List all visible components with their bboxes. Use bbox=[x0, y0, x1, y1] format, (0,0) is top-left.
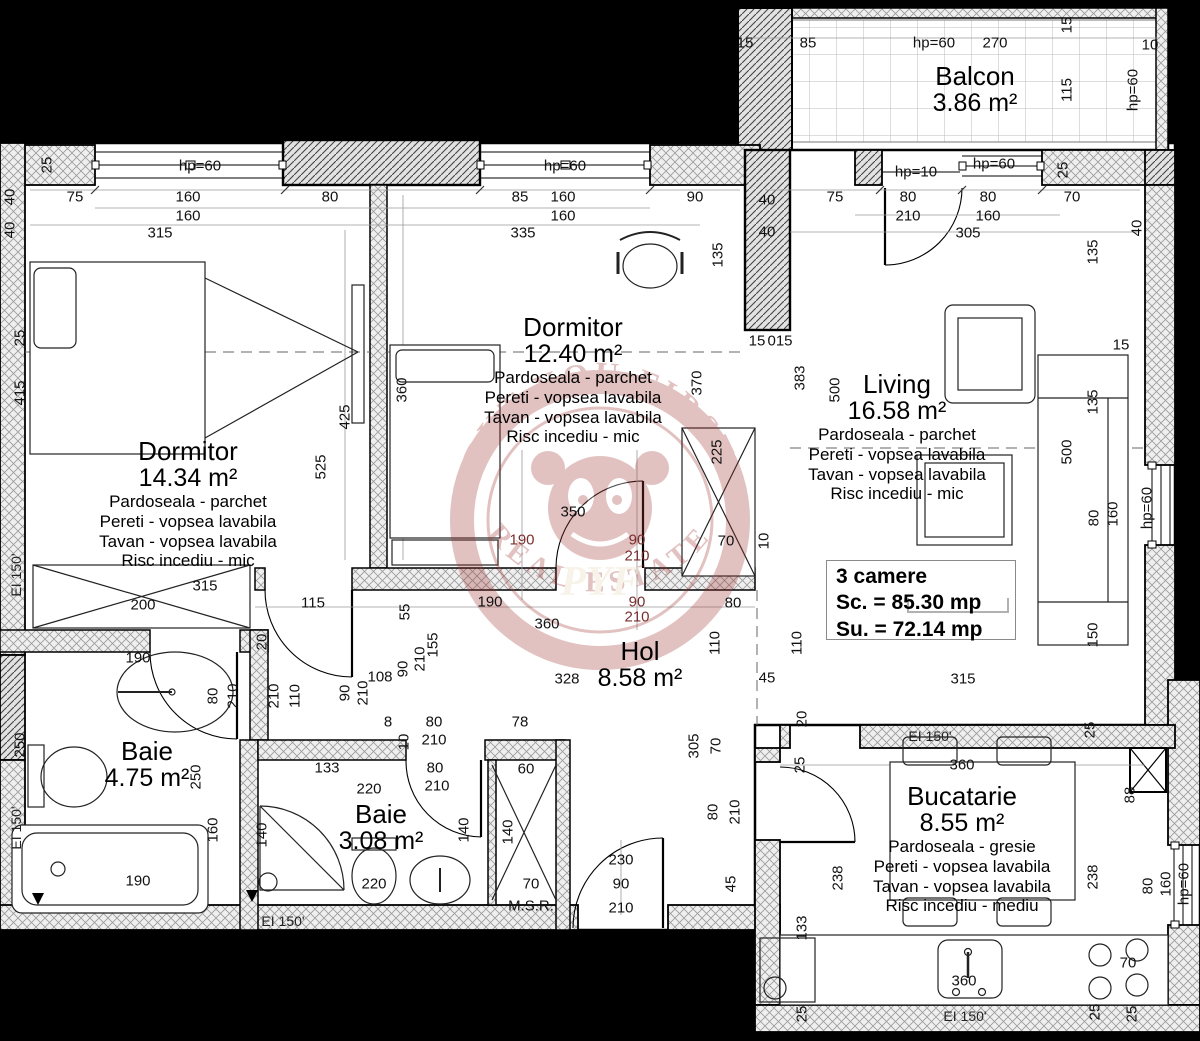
dimension-label: 140 bbox=[255, 822, 270, 847]
room-label-dormitor-2: Dormitor12.40 m²Pardoseala - parchetPere… bbox=[484, 313, 662, 447]
dimension-label: 160 bbox=[206, 817, 221, 842]
dimension-label: 210 bbox=[424, 779, 449, 794]
dimension-label: 190 bbox=[509, 533, 534, 548]
dimension-label: 210 bbox=[413, 646, 428, 671]
dimension-label: 45 bbox=[724, 876, 739, 893]
dimension-label: 85 bbox=[512, 190, 529, 205]
room-finish: Risc incediu - mic bbox=[808, 484, 986, 504]
room-finish: Pardoseala - gresie bbox=[873, 837, 1051, 857]
dimension-label: 80 bbox=[206, 688, 221, 705]
room-name: Bucatarie bbox=[873, 782, 1051, 810]
dimension-label: 78 bbox=[512, 715, 529, 730]
dimension-label: 315 bbox=[950, 672, 975, 687]
dimension-label: 70 bbox=[1064, 190, 1081, 205]
room-area: 14.34 m² bbox=[99, 465, 277, 492]
dimension-label: 75 bbox=[67, 190, 84, 205]
dimension-label: 110 bbox=[708, 631, 723, 655]
dimension-label: 360 bbox=[949, 758, 974, 773]
dimension-label: 015 bbox=[767, 334, 792, 349]
dimension-label: 90 bbox=[687, 190, 704, 205]
dimension-label: 15 bbox=[749, 334, 766, 349]
dimension-label: 270 bbox=[982, 36, 1007, 51]
room-label-baie-1: Baie4.75 m² bbox=[105, 737, 190, 792]
dimension-label: hp=60 bbox=[179, 159, 221, 174]
room-finish: Risc incediu - mic bbox=[99, 551, 277, 571]
room-area: 12.40 m² bbox=[484, 341, 662, 368]
dimension-label: 210 bbox=[267, 683, 282, 708]
fire-rating-label: EI 150' bbox=[908, 729, 951, 743]
dimension-label: 80 bbox=[706, 804, 721, 821]
room-finish: Tavan - vopsea lavabila bbox=[873, 877, 1051, 897]
dimension-label: 25 bbox=[795, 1006, 810, 1023]
dimension-label: 25 bbox=[1056, 162, 1071, 179]
dimension-label: hp=60 bbox=[1140, 487, 1155, 529]
dimension-label: 110 bbox=[288, 684, 303, 708]
dimension-label: 110 bbox=[790, 631, 805, 655]
dimension-label: 40 bbox=[759, 225, 776, 240]
room-finish: Pereti - vopsea lavabila bbox=[808, 445, 986, 465]
dimension-label: 115 bbox=[301, 596, 325, 611]
dimension-label: 160 bbox=[975, 209, 1000, 224]
dimension-label: 80 bbox=[322, 190, 339, 205]
dimension-label: 250 bbox=[13, 732, 28, 757]
room-finish: Tavan - vopsea lavabila bbox=[484, 408, 662, 428]
dimension-label: 40 bbox=[759, 193, 776, 208]
dimension-label: 250 bbox=[189, 764, 204, 789]
dimension-label: 15 bbox=[1113, 338, 1130, 353]
dimension-label: 305 bbox=[955, 226, 980, 241]
dimension-label: 40 bbox=[3, 189, 18, 206]
dimension-label: 160 bbox=[175, 209, 200, 224]
dimension-label: 75 bbox=[827, 190, 844, 205]
fire-rating-label: EI 150' bbox=[9, 553, 23, 596]
dimension-label: 210 bbox=[608, 901, 633, 916]
dimension-label: 85 bbox=[800, 36, 817, 51]
room-finish: Pereti - vopsea lavabila bbox=[99, 512, 277, 532]
room-name: Dormitor bbox=[484, 313, 662, 341]
dimension-label: 305 bbox=[687, 733, 702, 758]
dimension-label: 15 bbox=[1060, 17, 1075, 34]
dimension-label: 135 bbox=[1086, 239, 1101, 264]
dimension-label: 40 bbox=[3, 222, 18, 239]
dimension-label: hp=60 bbox=[973, 157, 1015, 172]
dimension-label: 238 bbox=[831, 865, 846, 890]
dimension-label: 370 bbox=[690, 370, 705, 395]
dimension-label: 160 bbox=[550, 190, 575, 205]
room-finish: Tavan - vopsea lavabila bbox=[808, 465, 986, 485]
dimension-label: 328 bbox=[554, 672, 579, 687]
dimension-label: 15 bbox=[737, 36, 754, 51]
summary-usable-area: Su. = 72.14 mp bbox=[836, 617, 1015, 643]
dimension-label: 80 bbox=[1087, 510, 1102, 527]
dimension-label: 210 bbox=[356, 680, 371, 705]
dimension-label: 210 bbox=[895, 209, 920, 224]
dimension-label: 8 bbox=[384, 715, 392, 730]
room-name: Living bbox=[808, 370, 986, 398]
room-name: Baie bbox=[339, 800, 424, 828]
room-finish: Pardoseala - parchet bbox=[808, 425, 986, 445]
room-area: 4.75 m² bbox=[105, 765, 190, 792]
dimension-label: 55 bbox=[398, 604, 413, 621]
room-finish: Pardoseala - parchet bbox=[484, 368, 662, 388]
dimension-label: hp=60 bbox=[913, 36, 955, 51]
room-name: Balcon bbox=[933, 62, 1018, 90]
dimension-label: 190 bbox=[477, 595, 502, 610]
dimension-label: 210 bbox=[624, 610, 649, 625]
dimension-label: 80 bbox=[427, 761, 444, 776]
dimension-label: 25 bbox=[1088, 1004, 1103, 1021]
room-finish: Pereti - vopsea lavabila bbox=[484, 388, 662, 408]
dimension-label: 315 bbox=[192, 579, 217, 594]
room-finish: Risc incediu - mediu bbox=[873, 896, 1051, 916]
dimension-label: 160 bbox=[550, 209, 575, 224]
dimension-label: hp=60 bbox=[544, 159, 586, 174]
dimension-label: M.S.R. bbox=[508, 899, 554, 914]
room-name: Hol bbox=[598, 637, 683, 665]
room-label-living: Living16.58 m²Pardoseala - parchetPereti… bbox=[808, 370, 986, 504]
dimension-label: 80 bbox=[900, 190, 917, 205]
dimension-label: 80 bbox=[1141, 878, 1156, 895]
dimension-label: 135 bbox=[1086, 389, 1101, 414]
dimension-label: 415 bbox=[13, 380, 28, 405]
dimension-label: 360 bbox=[951, 974, 976, 989]
dimension-label: 70 bbox=[523, 877, 540, 892]
dimension-label: 40 bbox=[1130, 220, 1145, 237]
dimension-label: hp=60 bbox=[1126, 69, 1141, 111]
dimension-label: 210 bbox=[226, 683, 241, 708]
dimension-label: 25 bbox=[13, 330, 28, 347]
apartment-summary: 3 camere Sc. = 85.30 mp Su. = 72.14 mp bbox=[826, 560, 1016, 640]
dimension-label: 140 bbox=[501, 819, 516, 844]
dimension-label: 60 bbox=[518, 762, 535, 777]
dimension-label: 80 bbox=[980, 190, 997, 205]
room-area: 8.55 m² bbox=[873, 810, 1051, 837]
dimension-label: 140 bbox=[457, 817, 472, 842]
dimension-label: 210 bbox=[728, 799, 743, 824]
room-finish: Pereti - vopsea lavabila bbox=[873, 857, 1051, 877]
dimension-label: 200 bbox=[130, 598, 155, 613]
dimension-label: 10 bbox=[397, 734, 412, 751]
dimension-label: 25 bbox=[1083, 722, 1098, 739]
dimension-label: 500 bbox=[1060, 439, 1075, 464]
dimension-label: 133 bbox=[795, 915, 810, 940]
fire-rating-label: EI 150' bbox=[9, 806, 23, 849]
dimension-label: 25 bbox=[793, 757, 808, 774]
room-label-dormitor-1: Dormitor14.34 m²Pardoseala - parchetPere… bbox=[99, 437, 277, 571]
dimension-label: 25 bbox=[1125, 1006, 1140, 1023]
room-name: Baie bbox=[105, 737, 190, 765]
dimension-label: 335 bbox=[510, 226, 535, 241]
room-area: 16.58 m² bbox=[808, 398, 986, 425]
dimension-label: 220 bbox=[356, 782, 381, 797]
dimension-label: 160 bbox=[175, 190, 200, 205]
room-area: 8.58 m² bbox=[598, 665, 683, 692]
dimension-label: 70 bbox=[709, 738, 724, 755]
dimension-label: 190 bbox=[125, 874, 150, 889]
fire-rating-label: EI 150' bbox=[943, 1009, 986, 1023]
dimension-label: 90 bbox=[396, 661, 411, 678]
dimension-label: 225 bbox=[710, 439, 725, 464]
dimension-label: 133 bbox=[314, 761, 339, 776]
dimension-label: hp=60 bbox=[1177, 863, 1192, 905]
dimension-label: 525 bbox=[314, 454, 329, 479]
dimension-label: 20 bbox=[795, 711, 810, 728]
room-area: 3.86 m² bbox=[933, 90, 1018, 117]
dimension-label: 135 bbox=[711, 242, 726, 267]
dimension-label: 230 bbox=[608, 853, 633, 868]
dimension-label: 360 bbox=[534, 617, 559, 632]
dimension-label: 70 bbox=[1120, 956, 1137, 971]
dimension-label: 360 bbox=[395, 377, 410, 402]
room-finish: Pardoseala - parchet bbox=[99, 492, 277, 512]
dimension-label: 425 bbox=[338, 404, 353, 429]
dimension-label: 10 bbox=[757, 533, 772, 550]
dimension-label: 210 bbox=[624, 549, 649, 564]
dimension-label: 383 bbox=[793, 365, 808, 390]
dimension-label: 90 bbox=[629, 595, 646, 610]
room-label-hol: Hol8.58 m² bbox=[598, 637, 683, 692]
dimension-label: 210 bbox=[421, 733, 446, 748]
dimension-label: 10 bbox=[1142, 38, 1159, 53]
dimension-label: 315 bbox=[147, 226, 172, 241]
dimension-label: 25 bbox=[40, 157, 55, 174]
room-finish: Tavan - vopsea lavabila bbox=[99, 532, 277, 552]
dimension-label: 220 bbox=[361, 877, 386, 892]
room-label-bucatarie: Bucatarie8.55 m²Pardoseala - gresiePeret… bbox=[873, 782, 1051, 916]
dimension-label: 80 bbox=[725, 596, 742, 611]
room-label-baie-2: Baie3.08 m² bbox=[339, 800, 424, 855]
dimension-label: 160 bbox=[1106, 501, 1121, 526]
dimension-label: 350 bbox=[560, 505, 585, 520]
dimension-label: 238 bbox=[1086, 864, 1101, 889]
dimension-label: 190 bbox=[125, 651, 150, 666]
fire-rating-label: EI 150' bbox=[261, 914, 304, 928]
dimension-label: 115 bbox=[1060, 78, 1075, 102]
dimension-label: hp=10 bbox=[895, 165, 937, 180]
summary-rooms: 3 camere bbox=[836, 564, 1015, 590]
label-layer: 3 camere Sc. = 85.30 mp Su. = 72.14 mp 7… bbox=[0, 0, 1200, 1041]
floor-plan-canvas: PUT YOU FIRST REAL ESTATE PYF 3 camere S… bbox=[0, 0, 1200, 1041]
room-finish: Risc incediu - mic bbox=[484, 427, 662, 447]
dimension-label: 20 bbox=[255, 634, 270, 651]
dimension-label: 80 bbox=[426, 715, 443, 730]
dimension-label: 150 bbox=[1086, 622, 1101, 647]
room-area: 3.08 m² bbox=[339, 828, 424, 855]
dimension-label: 160 bbox=[1159, 871, 1174, 896]
dimension-label: 90 bbox=[338, 685, 353, 702]
dimension-label: 45 bbox=[759, 671, 776, 686]
room-name: Dormitor bbox=[99, 437, 277, 465]
room-label-balcon: Balcon3.86 m² bbox=[933, 62, 1018, 117]
dimension-label: 70 bbox=[718, 534, 735, 549]
summary-built-area: Sc. = 85.30 mp bbox=[836, 590, 1015, 616]
dimension-label: 90 bbox=[613, 877, 630, 892]
dimension-label: 88 bbox=[1123, 787, 1138, 804]
dimension-label: 90 bbox=[629, 533, 646, 548]
